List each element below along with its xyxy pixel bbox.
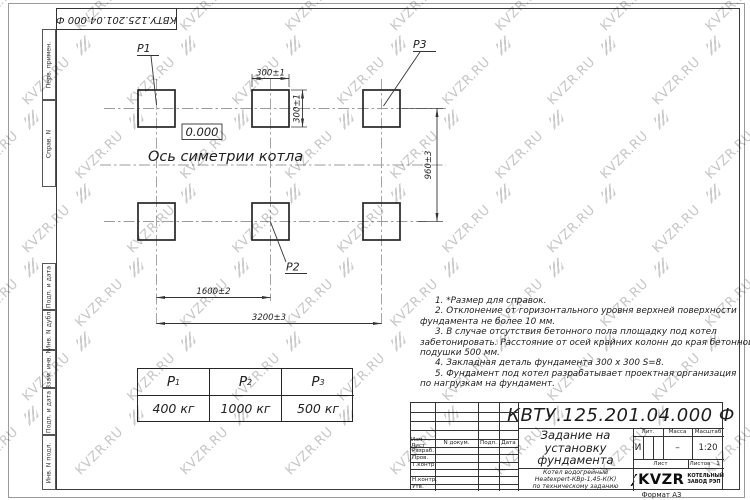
loads-value-cell: 1000 кг (210, 396, 282, 421)
note-line: фундамента не более 10 мм. (420, 317, 750, 327)
company-name: KVZR (638, 472, 684, 488)
note-line: 4. Закладная деталь фундамента 300 x 300… (420, 358, 750, 368)
note-line: 1. *Размер для справок. (420, 296, 750, 306)
scale-value: 1:20 (692, 436, 724, 459)
title-block-line (692, 428, 693, 459)
elevation-mark: 0.000 (186, 125, 219, 139)
signature-row-label: Утв. (412, 484, 435, 491)
load-symbol-index: 2 (247, 378, 252, 387)
note-line: 3. В случае отсутствия бетонного пола пл… (420, 327, 750, 337)
scale-label: Масштаб (692, 428, 724, 436)
sheets-label: Листов (688, 459, 712, 468)
load-symbol-index: 1 (175, 378, 180, 387)
load-symbol: P (167, 374, 175, 390)
loads-header-cell: P2 (210, 369, 282, 396)
title-block-line (663, 428, 664, 459)
loads-header-cell: P3 (282, 369, 354, 396)
signature-row-label: Разраб. (412, 447, 435, 454)
loads-value-cell: 400 кг (138, 396, 210, 421)
axis-label: Ось симетрии котла (148, 149, 303, 165)
dim-total-span: 3200±3 (252, 313, 286, 323)
note-line: по нагрузкам на фундамент. (420, 379, 750, 389)
loads-table: P1400 кгP21000 кгP3500 кг (137, 368, 353, 422)
doc-subtitle-line3: по техническому заданию (532, 483, 618, 490)
signature-row-label (412, 469, 435, 476)
format-label: Формат А3 (600, 491, 723, 499)
sheet-label: Лист (633, 459, 688, 468)
revision-column-header: Дата (499, 439, 518, 447)
signature-row-label: Н.контр. (412, 476, 435, 483)
loads-header-cell: P1 (138, 369, 210, 396)
load-symbol: P (311, 374, 319, 390)
title-block-line (411, 421, 518, 422)
revision-column-header: Подп. (478, 439, 499, 447)
title-block: КВТУ.125.201.04.000 Ф Задание на установ… (410, 402, 723, 490)
drawing-sheet: КВТУ.125.201.04.000 Ф Перв. примен.Справ… (0, 0, 750, 500)
note-line: 2. Отклонение от горизонтального уровня … (420, 306, 750, 316)
mass-value: – (663, 436, 692, 459)
doc-title-line3: фундамента (537, 454, 613, 467)
doc-subtitle: Котел водогрейный Heatexpert-КВр-1,45-К(… (518, 468, 633, 491)
dim-pad-width: 300±1 (256, 69, 285, 79)
dim-row-spacing: 960±3 (424, 151, 434, 180)
label-p3: P3 (413, 38, 427, 51)
dim-pad-height: 300±1 (293, 94, 303, 123)
title-block-line (688, 459, 689, 468)
loads-value-cell: 500 кг (282, 396, 354, 421)
label-p1: P1 (137, 42, 151, 55)
dim-col-spacing: 1600±2 (196, 287, 230, 297)
note-line: забетонировать. Расстояние от осей крайн… (420, 338, 750, 348)
revision-column-header: N докум. (435, 439, 478, 447)
title-block-line (633, 436, 724, 437)
note-line: 5. Фундамент под котел разрабатывает про… (420, 369, 750, 379)
note-line: подушки 500 мм. (420, 348, 750, 358)
doc-subtitle-line2: Heatexpert-КВр-1,45-К(К) (535, 476, 617, 483)
label-p2: P2 (286, 261, 300, 274)
title-block-line (653, 436, 654, 459)
doc-title-line1: Задание на (541, 429, 611, 442)
signature-row-label: Пров. (412, 454, 435, 461)
lit-label: Лит. (633, 428, 663, 436)
extension-lines (252, 74, 443, 222)
title-block-line (411, 412, 518, 413)
load-symbol-index: 3 (320, 378, 325, 387)
mass-label: Масса (663, 428, 692, 436)
doc-title: Задание на установку фундамента (518, 428, 633, 468)
load-symbol: P (239, 374, 247, 390)
doc-number: КВТУ.125.201.04.000 Ф (518, 403, 724, 428)
title-block-line (518, 403, 519, 491)
signature-row-label: Т.контр. (412, 462, 435, 469)
title-block-line (518, 428, 724, 429)
doc-subtitle-line1: Котел водогрейный (543, 469, 608, 476)
title-block-line (643, 436, 644, 459)
company-tagline-line2: ЗАВОД РЭП (687, 480, 724, 486)
sheets-value: 1 (712, 459, 724, 468)
company-tagline: КОТЕЛЬНЫЙ ЗАВОД РЭП (687, 474, 724, 485)
title-block-line (411, 430, 518, 431)
company-cell: KVZR КОТЕЛЬНЫЙ ЗАВОД РЭП (633, 468, 724, 491)
technical-notes: 1. *Размер для справок.2. Отклонение от … (420, 296, 750, 390)
title-block-line (518, 468, 724, 469)
revision-column-header: Изм Лист (411, 439, 435, 447)
title-block-line (633, 459, 724, 460)
lit-value: И (633, 436, 643, 459)
